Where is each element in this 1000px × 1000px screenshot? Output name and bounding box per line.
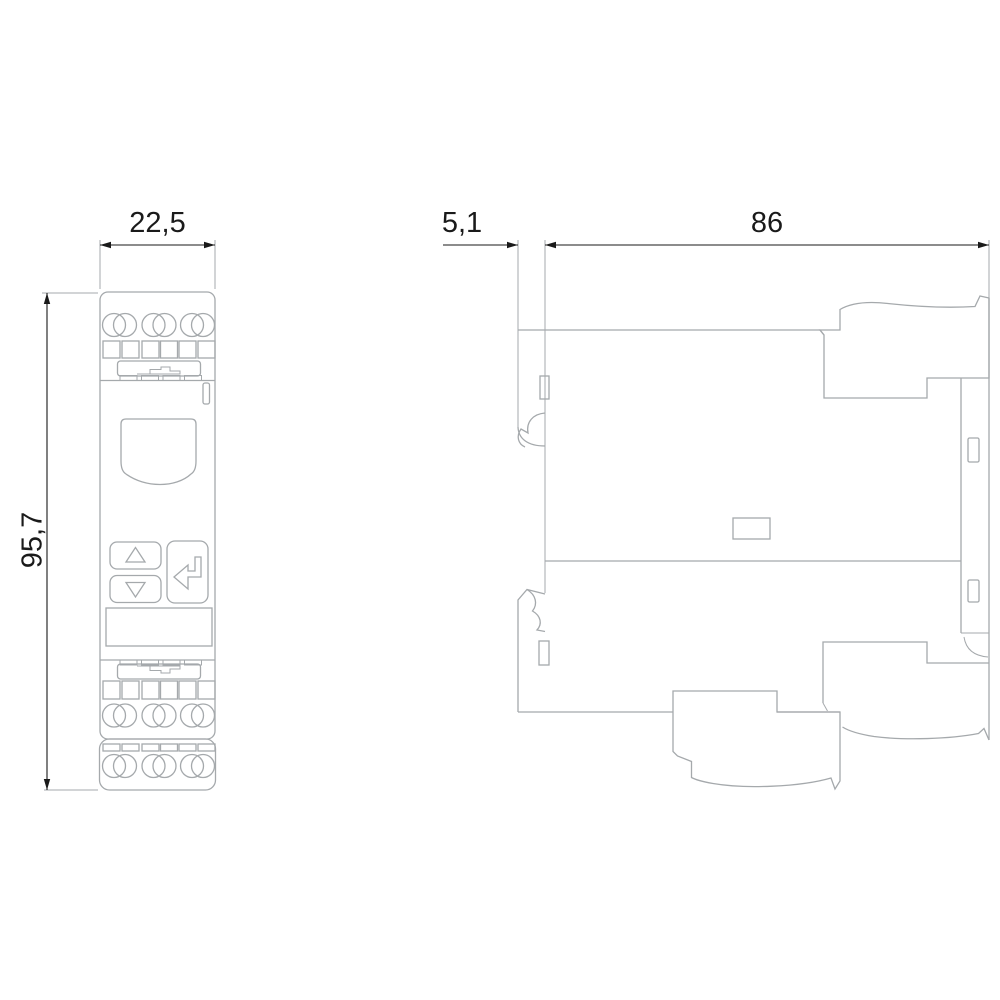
side-front-slot-upper bbox=[968, 438, 979, 462]
drawing-geometry bbox=[0, 0, 1000, 1000]
terminal-slots-lower bbox=[103, 744, 215, 751]
arrowhead-right-icon bbox=[204, 242, 215, 248]
button-enter bbox=[167, 541, 208, 603]
cover-latch-bottom bbox=[137, 666, 180, 673]
arrowhead-left-icon bbox=[100, 242, 111, 248]
arrowhead-depth-right-icon bbox=[978, 242, 989, 248]
button-up bbox=[110, 542, 161, 569]
arrowhead-up-icon bbox=[44, 293, 50, 304]
side-marking-window bbox=[733, 518, 770, 539]
din-clip-bottom-claw bbox=[527, 590, 545, 632]
side-terminal-cover-top bbox=[820, 296, 989, 398]
arrow-down-icon bbox=[126, 583, 145, 598]
cover-latch-top bbox=[137, 367, 180, 374]
dimension-drawing: 22,5 95,7 5,1 86 bbox=[0, 0, 1000, 1000]
led-slot bbox=[203, 383, 210, 404]
dim-label-clip-depth: 5,1 bbox=[434, 209, 490, 238]
terminal-squares-bottom bbox=[103, 681, 215, 699]
dim-label-width: 22,5 bbox=[100, 209, 215, 238]
din-clip-top-inner bbox=[518, 413, 545, 447]
din-clip-slot-bottom bbox=[539, 641, 549, 665]
side-cover-wavy-bottom bbox=[843, 727, 990, 740]
arrowhead-depth-left-icon bbox=[545, 242, 556, 248]
arrow-up-icon bbox=[126, 548, 145, 563]
terminal-circles-top bbox=[103, 314, 215, 337]
terminal-circles-middle bbox=[103, 704, 215, 727]
side-cover-chamfer bbox=[823, 703, 828, 711]
side-cover-pivot-arc bbox=[964, 637, 988, 657]
front-view bbox=[100, 292, 216, 790]
label-plate bbox=[106, 608, 212, 646]
side-view bbox=[518, 240, 989, 789]
dim-label-depth: 86 bbox=[730, 209, 804, 238]
side-top-edge bbox=[518, 330, 824, 335]
terminal-circles-lower bbox=[103, 755, 215, 778]
button-down bbox=[110, 576, 161, 603]
side-front-slot-lower bbox=[968, 580, 979, 602]
terminal-squares-top bbox=[103, 341, 215, 358]
arrowhead-clip-icon bbox=[507, 242, 518, 248]
din-clip-bottom-outline bbox=[518, 590, 545, 713]
side-terminal-cover-bottom-center bbox=[673, 691, 840, 789]
enter-arrow-icon bbox=[174, 557, 201, 589]
arrowhead-down-icon bbox=[44, 779, 50, 790]
side-terminal-cover-bottom-right bbox=[823, 642, 989, 703]
dim-label-height: 95,7 bbox=[19, 512, 48, 568]
display-window bbox=[121, 419, 196, 485]
